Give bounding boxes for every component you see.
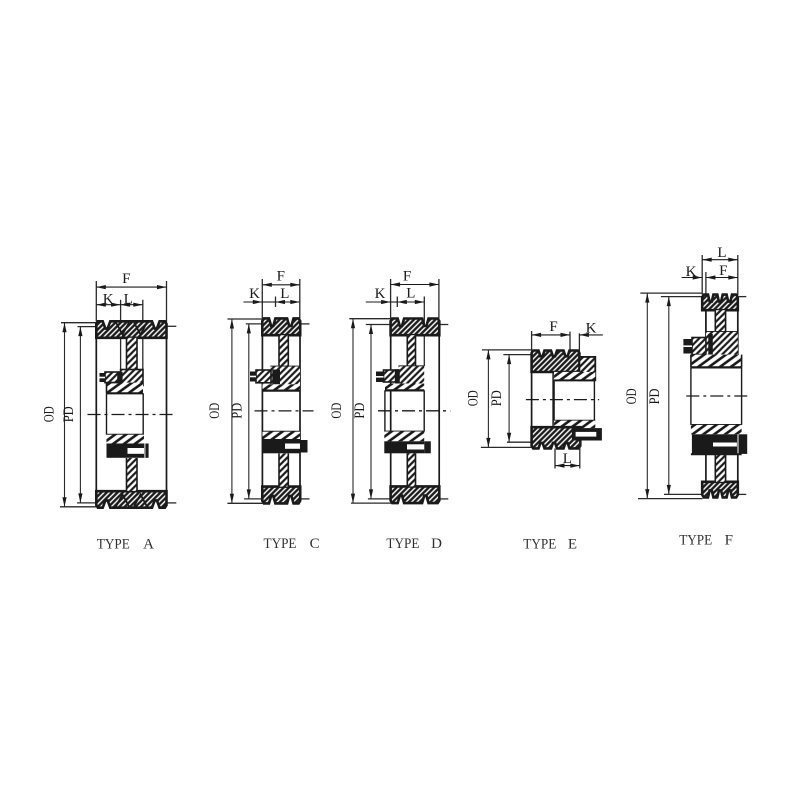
svg-text:OD: OD bbox=[42, 406, 58, 422]
svg-text:L: L bbox=[563, 451, 572, 467]
svg-text:K: K bbox=[103, 291, 114, 307]
svg-text:OD: OD bbox=[466, 390, 482, 406]
svg-text:TYPE: TYPE bbox=[97, 536, 130, 552]
svg-text:L: L bbox=[280, 286, 289, 302]
svg-text:OD: OD bbox=[329, 402, 345, 418]
svg-text:E: E bbox=[568, 537, 577, 553]
svg-text:C: C bbox=[310, 536, 320, 552]
svg-text:K: K bbox=[375, 286, 386, 302]
svg-text:TYPE: TYPE bbox=[264, 536, 297, 552]
svg-text:F: F bbox=[403, 268, 411, 284]
svg-text:PD: PD bbox=[352, 402, 368, 418]
svg-text:A: A bbox=[143, 536, 154, 552]
svg-text:F: F bbox=[549, 319, 557, 335]
svg-text:K: K bbox=[686, 264, 697, 280]
svg-text:F: F bbox=[725, 533, 733, 549]
svg-text:L: L bbox=[717, 245, 726, 261]
svg-text:PD: PD bbox=[61, 406, 77, 422]
svg-text:K: K bbox=[249, 286, 260, 302]
svg-text:OD: OD bbox=[207, 403, 223, 419]
svg-text:PD: PD bbox=[647, 388, 663, 404]
svg-text:PD: PD bbox=[489, 390, 505, 406]
svg-text:TYPE: TYPE bbox=[386, 536, 419, 552]
svg-text:F: F bbox=[719, 263, 727, 279]
svg-text:L: L bbox=[124, 291, 133, 307]
svg-text:PD: PD bbox=[230, 403, 246, 419]
svg-text:K: K bbox=[586, 320, 597, 336]
svg-text:L: L bbox=[406, 286, 415, 302]
svg-text:OD: OD bbox=[624, 388, 640, 404]
svg-text:D: D bbox=[431, 536, 442, 552]
svg-text:F: F bbox=[122, 271, 130, 287]
svg-text:TYPE: TYPE bbox=[523, 537, 556, 553]
svg-text:F: F bbox=[277, 269, 285, 285]
svg-text:TYPE: TYPE bbox=[679, 533, 712, 549]
